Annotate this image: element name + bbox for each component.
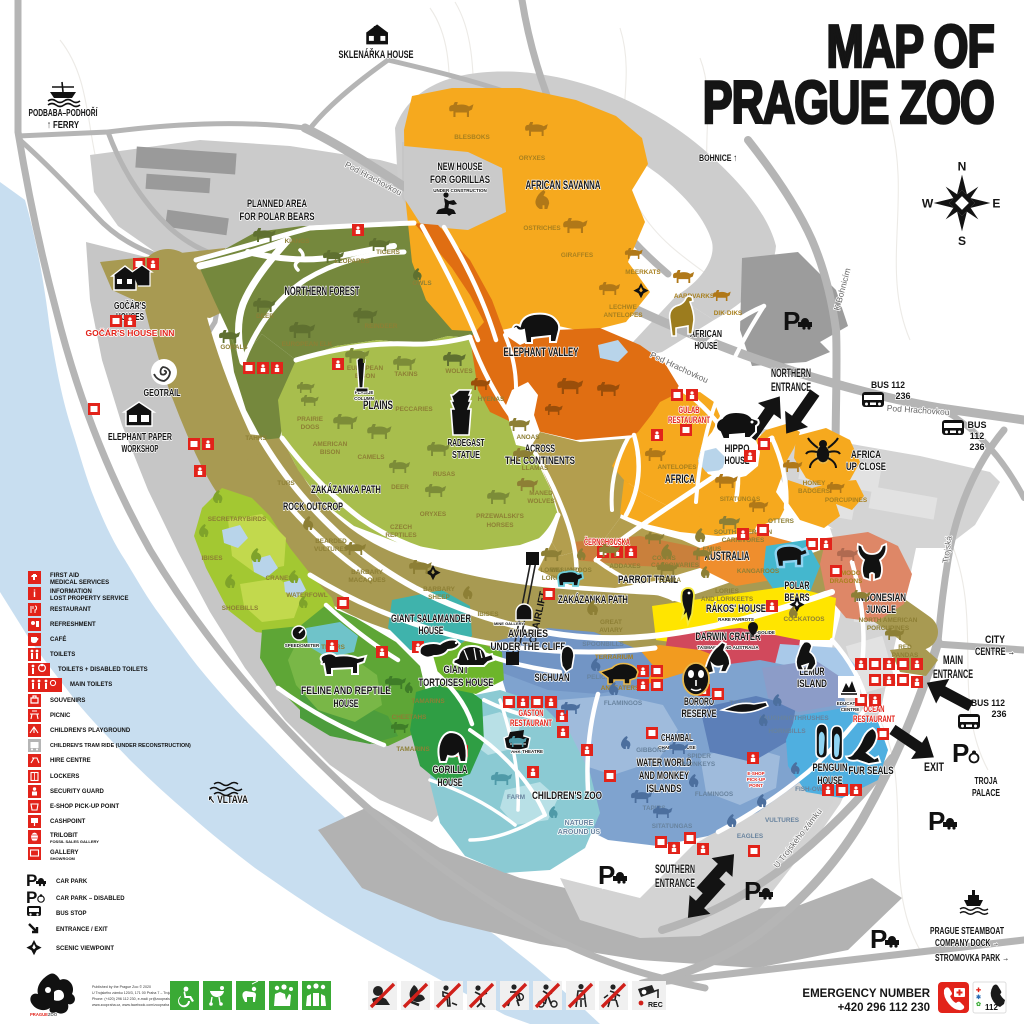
svg-text:FOR POLAR BEARS: FOR POLAR BEARS: [240, 211, 315, 223]
svg-text:REC: REC: [648, 1002, 663, 1009]
svg-text:AND MONKEY: AND MONKEY: [639, 770, 689, 782]
svg-text:PANDAS: PANDAS: [892, 652, 919, 659]
svg-text:EAGLES: EAGLES: [737, 833, 764, 840]
svg-text:HORSES: HORSES: [487, 522, 515, 529]
svg-text:CASHPOINT: CASHPOINT: [50, 819, 86, 825]
svg-text:SECURITY GUARD: SECURITY GUARD: [50, 789, 105, 795]
svg-text:HYENAS: HYENAS: [478, 396, 505, 403]
svg-text:E-SHOP PICK-UP POINT: E-SHOP PICK-UP POINT: [50, 804, 119, 810]
svg-text:ZAKÁZANKA PATH: ZAKÁZANKA PATH: [311, 483, 381, 496]
svg-text:✿: ✿: [976, 1001, 981, 1008]
svg-text:236: 236: [969, 442, 984, 452]
svg-text:FUR SEALS: FUR SEALS: [849, 765, 894, 777]
svg-text:DRAGONS: DRAGONS: [830, 578, 863, 585]
svg-text:SECRETARYBIRDS: SECRETARYBIRDS: [208, 516, 267, 523]
svg-text:ORYXES: ORYXES: [519, 155, 546, 162]
svg-text:NORTH AMERICAN: NORTH AMERICAN: [859, 617, 918, 624]
svg-text:BLESBOKS: BLESBOKS: [454, 134, 490, 141]
svg-text:FOSSIL SALES GALLERY: FOSSIL SALES GALLERY: [50, 839, 99, 844]
svg-text:WATERFOWL: WATERFOWL: [286, 592, 328, 599]
svg-text:CENTRE →: CENTRE →: [975, 646, 1015, 658]
svg-text:GORILLA: GORILLA: [433, 764, 468, 776]
svg-text:DEER: DEER: [391, 484, 409, 491]
svg-text:E: E: [992, 196, 1000, 210]
svg-text:RADEGAST: RADEGAST: [448, 437, 485, 449]
svg-text:POINT: POINT: [749, 783, 763, 788]
svg-text:EUROPEAN ELK: EUROPEAN ELK: [282, 341, 333, 348]
svg-text:CHILDREN'S TRAM RIDE (UNDER RE: CHILDREN'S TRAM RIDE (UNDER RECONSTRUCTI…: [50, 743, 191, 749]
svg-text:CHILDREN'S PLAYGROUND: CHILDREN'S PLAYGROUND: [50, 728, 131, 734]
svg-text:BEARDED: BEARDED: [315, 538, 347, 545]
svg-text:GIANT SALAMANDER: GIANT SALAMANDER: [391, 613, 471, 625]
svg-text:CAMELS: CAMELS: [358, 454, 386, 461]
svg-text:HORNBILLS: HORNBILLS: [768, 728, 806, 735]
svg-text:LLAMAS: LLAMAS: [522, 465, 549, 472]
svg-text:Phone: (+420) 296 112 230, e-m: Phone: (+420) 296 112 230, e-mail: pr@zo…: [92, 997, 176, 1001]
svg-text:CHILDREN'S ZOO: CHILDREN'S ZOO: [532, 790, 602, 802]
svg-text:FLAMINGOS: FLAMINGOS: [695, 791, 734, 798]
svg-text:NORTHERN FOREST: NORTHERN FOREST: [285, 284, 360, 298]
svg-text:GIBBONS: GIBBONS: [636, 747, 667, 754]
svg-text:SHEEP: SHEEP: [428, 594, 450, 601]
svg-text:RUSAS: RUSAS: [433, 471, 456, 478]
svg-text:HOUSE: HOUSE: [438, 777, 463, 789]
svg-text:BARBARY: BARBARY: [423, 586, 455, 593]
svg-text:SHOWROOM: SHOWROOM: [50, 856, 76, 861]
svg-text:SHOEBILLS: SHOEBILLS: [222, 605, 259, 612]
svg-text:OWLS: OWLS: [412, 280, 432, 287]
svg-text:REFRESHMENT: REFRESHMENT: [50, 622, 96, 628]
svg-text:HOUSE: HOUSE: [334, 698, 359, 710]
svg-text:DOGS: DOGS: [301, 424, 321, 431]
svg-text:AVIARIES: AVIARIES: [508, 628, 548, 640]
svg-text:LORIES: LORIES: [715, 588, 740, 595]
svg-text:POLAR: POLAR: [785, 580, 810, 592]
svg-text:EMERGENCY NUMBER: EMERGENCY NUMBER: [802, 988, 930, 1000]
svg-text:SICHUAN: SICHUAN: [535, 672, 570, 684]
svg-text:PRAGUE STEAMBOAT: PRAGUE STEAMBOAT: [930, 926, 1004, 937]
svg-text:i: i: [33, 589, 36, 600]
svg-text:TORTOISES HOUSE: TORTOISES HOUSE: [419, 677, 494, 689]
svg-text:SPOONBILLS: SPOONBILLS: [582, 641, 624, 648]
svg-text:236: 236: [895, 391, 910, 401]
svg-text:ČERNOHOUSKA: ČERNOHOUSKA: [584, 536, 630, 547]
svg-text:PICNIC: PICNIC: [50, 713, 71, 719]
svg-text:112: 112: [985, 1003, 998, 1012]
svg-text:BISON: BISON: [320, 449, 341, 456]
svg-text:ANTEATERS: ANTEATERS: [601, 685, 640, 692]
svg-text:OSTRICHES: OSTRICHES: [523, 225, 561, 232]
svg-text:P: P: [26, 888, 37, 907]
svg-text:IBISES: IBISES: [478, 611, 500, 618]
svg-text:SOUTHERN: SOUTHERN: [655, 862, 695, 876]
svg-text:AFRICA: AFRICA: [851, 449, 881, 461]
svg-text:SPIDER: SPIDER: [687, 753, 711, 760]
svg-text:VULTURES: VULTURES: [314, 546, 349, 553]
svg-text:WOLVES: WOLVES: [445, 368, 473, 375]
svg-text:ISLANDS: ISLANDS: [647, 783, 682, 795]
svg-text:LOCKERS: LOCKERS: [50, 774, 79, 780]
svg-text:ELEPHANT VALLEY: ELEPHANT VALLEY: [504, 347, 579, 359]
svg-text:PECCARIES: PECCARIES: [395, 406, 433, 413]
svg-text:HOUSE: HOUSE: [419, 625, 444, 637]
svg-text:ELEPHANT PAPER: ELEPHANT PAPER: [108, 431, 172, 443]
svg-text:RESTAURANT: RESTAURANT: [510, 718, 552, 728]
svg-text:U Trojského zámku 120/3, 171 0: U Trojského zámku 120/3, 171 00 Praha 7 …: [92, 991, 171, 995]
svg-text:MANED: MANED: [529, 490, 553, 497]
svg-text:WOLVES: WOLVES: [527, 498, 555, 505]
svg-text:JUNGLE: JUNGLE: [866, 604, 896, 616]
svg-text:SITATUNGAS: SITATUNGAS: [652, 823, 693, 830]
svg-text:MONKEYS: MONKEYS: [683, 761, 716, 768]
svg-text:BARBARY: BARBARY: [351, 569, 383, 576]
svg-text:PODBABA–PODHOŘÍ: PODBABA–PODHOŘÍ: [29, 106, 99, 119]
svg-text:ANTELOPES: ANTELOPES: [657, 464, 697, 471]
svg-text:AFRICA: AFRICA: [665, 474, 695, 486]
svg-text:PLANNED AREA: PLANNED AREA: [247, 198, 307, 210]
svg-text:KANGAROOS: KANGAROOS: [737, 568, 780, 575]
svg-text:GOČÁR'S: GOČÁR'S: [114, 299, 146, 312]
svg-text:RÁKOS' HOUSE: RÁKOS' HOUSE: [706, 602, 766, 615]
svg-text:MAIN TOILETS: MAIN TOILETS: [70, 682, 112, 688]
svg-text:236: 236: [991, 709, 1006, 719]
svg-text:BUS: BUS: [967, 420, 986, 430]
svg-text:TROJA: TROJA: [975, 776, 998, 787]
svg-text:REPTILES: REPTILES: [385, 532, 417, 539]
svg-text:REINDEER: REINDEER: [364, 323, 397, 330]
svg-text:ROCK OUTCROP: ROCK OUTCROP: [283, 501, 343, 513]
svg-text:PALACE: PALACE: [972, 788, 1000, 799]
svg-text:MACAQUES: MACAQUES: [348, 577, 386, 584]
svg-text:COLUMN: COLUMN: [354, 396, 374, 401]
svg-text:ENTRANCE: ENTRANCE: [933, 667, 973, 681]
svg-text:DIK-DIKS: DIK-DIKS: [714, 310, 743, 317]
svg-text:S: S: [958, 234, 966, 248]
svg-text:N: N: [958, 159, 967, 173]
svg-text:RESTAURANT: RESTAURANT: [853, 714, 895, 724]
svg-text:FLAMINGOS: FLAMINGOS: [604, 700, 643, 707]
svg-text:ENTRANCE: ENTRANCE: [655, 876, 695, 890]
svg-text:PRZEWALSKI'S: PRZEWALSKI'S: [476, 513, 524, 520]
svg-text:ADDAXES: ADDAXES: [609, 563, 641, 570]
svg-text:HIRE CENTRE: HIRE CENTRE: [50, 758, 91, 764]
svg-text:ZEBRA: ZEBRA: [659, 577, 681, 584]
svg-text:PENGUIN: PENGUIN: [813, 762, 848, 774]
svg-text:ANTELOPES: ANTELOPES: [603, 312, 643, 319]
svg-text:UNDER THE CLIFF: UNDER THE CLIFF: [491, 641, 566, 653]
svg-text:MINE GALLERY: MINE GALLERY: [494, 621, 524, 626]
svg-text:AMERICAN: AMERICAN: [313, 441, 348, 448]
svg-text:COMPANY DOCK →: COMPANY DOCK →: [935, 938, 999, 949]
svg-text:BADGERS: BADGERS: [798, 488, 831, 495]
svg-text:BUS 112: BUS 112: [971, 698, 1005, 708]
svg-text:TASMANIA AND AUSTRALIA: TASMANIA AND AUSTRALIA: [697, 645, 759, 650]
svg-text:ENTRANCE: ENTRANCE: [771, 380, 811, 394]
svg-text:W: W: [922, 196, 934, 210]
svg-text:TOILETS: TOILETS: [50, 652, 75, 658]
svg-text:OTTERS: OTTERS: [768, 518, 795, 525]
svg-text:SPEEDOMETER: SPEEDOMETER: [285, 643, 320, 648]
svg-text:LAUGHINGTHRUSHES: LAUGHINGTHRUSHES: [759, 715, 829, 722]
svg-text:PRAGUE ZOO: PRAGUE ZOO: [703, 70, 994, 137]
svg-text:CAFÉ: CAFÉ: [50, 635, 66, 643]
svg-text:PRAIRIE: PRAIRIE: [297, 416, 324, 423]
svg-text:CHEETAHS: CHEETAHS: [392, 714, 427, 721]
svg-text:UP CLOSE: UP CLOSE: [846, 461, 886, 473]
svg-text:MAIN: MAIN: [943, 653, 963, 667]
svg-text:COCKATOOS: COCKATOOS: [784, 616, 826, 623]
svg-text:+420 296 112 230: +420 296 112 230: [838, 1002, 930, 1014]
svg-text:FARM: FARM: [507, 794, 525, 801]
svg-text:CENTRE: CENTRE: [841, 707, 860, 712]
svg-text:RESTAURANT: RESTAURANT: [668, 415, 710, 425]
svg-text:NORTHERN: NORTHERN: [771, 366, 811, 380]
svg-text:E-SHOP: E-SHOP: [747, 771, 764, 776]
svg-text:AARDVARKS: AARDVARKS: [674, 293, 715, 300]
svg-text:MEDICAL SERVICES: MEDICAL SERVICES: [50, 580, 109, 586]
svg-text:HONEY: HONEY: [803, 480, 826, 487]
svg-text:112: 112: [970, 431, 985, 441]
svg-text:AFRICAN: AFRICAN: [690, 328, 722, 340]
svg-text:PICK-UP: PICK-UP: [747, 777, 766, 782]
svg-text:TAMARINS: TAMARINS: [396, 746, 430, 753]
svg-text:AROUND US: AROUND US: [558, 829, 601, 836]
svg-text:SOUVENIRS: SOUVENIRS: [50, 698, 85, 704]
svg-text:TERRARIUM: TERRARIUM: [595, 654, 633, 661]
svg-text:ISLAND: ISLAND: [797, 678, 827, 690]
svg-text:RESERVE: RESERVE: [682, 708, 717, 720]
svg-text:GREAT: GREAT: [600, 619, 622, 626]
svg-text:AFRICAN SAVANNA: AFRICAN SAVANNA: [526, 178, 601, 192]
svg-text:ANOAS: ANOAS: [516, 434, 540, 441]
svg-text:LOST PROPERTY SERVICE: LOST PROPERTY SERVICE: [50, 596, 128, 602]
svg-text:MEERKATS: MEERKATS: [625, 269, 661, 276]
svg-text:RARE PARROTS: RARE PARROTS: [718, 617, 754, 622]
svg-text:BOHNICE ↑: BOHNICE ↑: [699, 153, 737, 164]
svg-text:FELINE AND REPTILE: FELINE AND REPTILE: [301, 685, 391, 697]
svg-text:ENTRANCE / EXIT: ENTRANCE / EXIT: [56, 927, 108, 933]
svg-text:SCENIC VIEWPOINT: SCENIC VIEWPOINT: [56, 946, 114, 952]
svg-text:RESTAURANT: RESTAURANT: [50, 607, 91, 613]
svg-text:PRAGUE: PRAGUE: [30, 1012, 48, 1017]
svg-text:LECHWE: LECHWE: [609, 304, 637, 311]
svg-text:✚: ✚: [976, 987, 981, 994]
svg-text:TAMARINS: TAMARINS: [411, 698, 445, 705]
svg-text:FOR GORILLAS: FOR GORILLAS: [430, 174, 490, 186]
svg-text:✱: ✱: [976, 994, 981, 1001]
svg-text:GASTON: GASTON: [519, 708, 544, 718]
svg-text:STROMOVKA PARK →: STROMOVKA PARK →: [935, 953, 1009, 964]
svg-text:HOUSE: HOUSE: [695, 340, 718, 352]
svg-text:BUS STOP: BUS STOP: [56, 911, 87, 917]
svg-text:Published by the Prague Zoo ©: Published by the Prague Zoo © 2020: [92, 985, 151, 989]
svg-text:BUS 112: BUS 112: [871, 380, 905, 390]
svg-text:TIGERS: TIGERS: [376, 249, 401, 256]
svg-text:VULTURES: VULTURES: [765, 817, 800, 824]
svg-text:TAKINS: TAKINS: [394, 371, 418, 378]
svg-text:AND LORIKEETS: AND LORIKEETS: [701, 596, 754, 603]
svg-text:INFORMATION: INFORMATION: [50, 589, 92, 595]
svg-text:CAR PARK – DISABLED: CAR PARK – DISABLED: [56, 896, 125, 902]
svg-text:CAR PARK: CAR PARK: [56, 879, 88, 885]
svg-text:IBISES: IBISES: [202, 555, 224, 562]
svg-text:FIRST AID: FIRST AID: [50, 573, 80, 579]
svg-text:RED: RED: [898, 644, 912, 651]
svg-text:PORCUPINES: PORCUPINES: [825, 497, 868, 504]
svg-text:GULAB: GULAB: [679, 405, 700, 415]
svg-text:↑ FERRY: ↑ FERRY: [47, 119, 79, 131]
svg-text:GIRAFFES: GIRAFFES: [561, 252, 594, 259]
svg-text:CZECH: CZECH: [390, 524, 412, 531]
svg-text:TOILETS + DISABLED TOILETS: TOILETS + DISABLED TOILETS: [58, 667, 148, 673]
svg-text:GOČÁR'S HOUSE INN: GOČÁR'S HOUSE INN: [86, 327, 175, 338]
svg-text:KIANGS: KIANGS: [285, 238, 311, 245]
svg-text:TAHRS: TAHRS: [245, 435, 267, 442]
svg-text:CHAMBAL: CHAMBAL: [661, 733, 693, 744]
svg-text:DEER: DEER: [256, 313, 274, 320]
svg-text:CITY: CITY: [985, 634, 1006, 646]
svg-text:STATUE: STATUE: [452, 449, 480, 461]
svg-text:www.zoopraha.cz, www.facebook.: www.zoopraha.cz, www.facebook.com/zoopra…: [92, 1003, 169, 1007]
svg-text:WORKSHOP: WORKSHOP: [122, 443, 159, 455]
svg-text:GORALS: GORALS: [220, 344, 248, 351]
svg-text:ORYXES: ORYXES: [420, 511, 447, 518]
svg-text:SKLENÁŘKA HOUSE: SKLENÁŘKA HOUSE: [339, 48, 414, 61]
svg-text:GEOTRAIL: GEOTRAIL: [144, 387, 181, 399]
svg-text:TURS: TURS: [277, 480, 295, 487]
svg-text:NEW HOUSE: NEW HOUSE: [438, 161, 483, 173]
svg-text:AVIARY: AVIARY: [599, 627, 623, 634]
svg-text:ZOO: ZOO: [48, 1012, 58, 1017]
svg-text:UNDER CONSTRUCTION: UNDER CONSTRUCTION: [433, 188, 487, 193]
svg-text:PLAINS: PLAINS: [363, 400, 393, 412]
svg-text:NATURE: NATURE: [565, 820, 594, 827]
svg-text:EXIT: EXIT: [924, 760, 945, 774]
svg-text:BORORO: BORORO: [684, 696, 714, 708]
